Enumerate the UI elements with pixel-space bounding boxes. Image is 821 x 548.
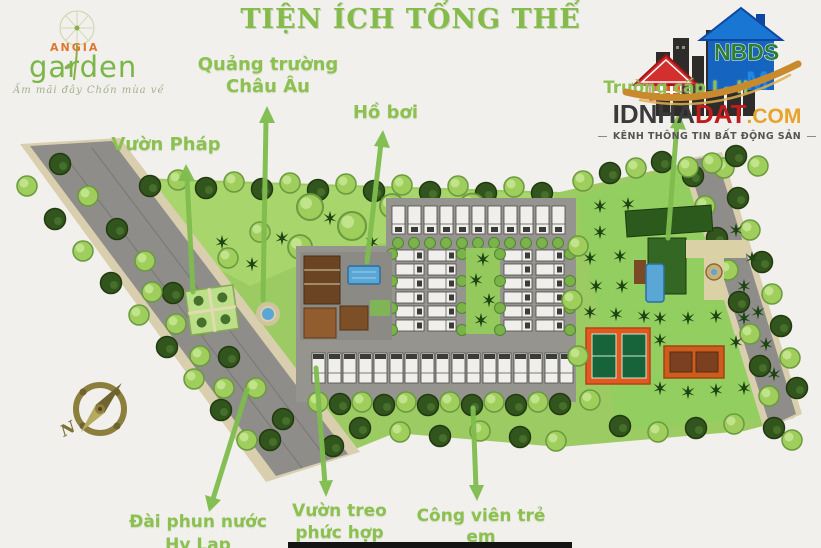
site-name-prefix: IDNHA xyxy=(613,99,695,129)
label-greek-fountain: Đài phun nước Hy Lạp xyxy=(123,511,273,548)
label-hanging-garden-line1: Vườn treo xyxy=(272,500,407,522)
label-greek-fountain-line1: Đài phun nước xyxy=(123,511,273,534)
nbds-site-name: IDNHADAT.COM xyxy=(598,99,816,130)
angia-tagline: Ấm mãi đây Chốn mùa về xyxy=(12,83,165,96)
label-european-square: Quảng trường Châu Âu xyxy=(193,54,343,98)
screenshot-root: N TIỆN ÍC xyxy=(0,0,821,548)
site-name-tld: .COM xyxy=(747,105,802,128)
house-row-top xyxy=(392,206,565,249)
label-greek-fountain-line2: Hy Lạp xyxy=(123,534,273,548)
label-european-square-line1: Quảng trường xyxy=(193,54,343,76)
label-hanging-garden-line2: phức hợp xyxy=(272,522,407,544)
swimming-pool xyxy=(348,266,380,284)
compass: N xyxy=(56,379,126,441)
nbds-acronym: NBDS xyxy=(714,39,779,65)
site-name-accent: DAT xyxy=(695,99,747,129)
palm-median xyxy=(466,248,500,334)
angia-brand-secondary: garden xyxy=(29,50,137,84)
label-french-garden: Vườn Pháp xyxy=(106,134,226,156)
nbds-tagline-text: KÊNH THÔNG TIN BẤT ĐỘNG SẢN xyxy=(613,131,801,142)
playground xyxy=(664,346,724,378)
tagline-dash-left xyxy=(598,136,607,137)
school-pool xyxy=(646,264,664,302)
angia-logo: ANGIA garden Ấm mãi đây Chốn mùa về xyxy=(5,0,175,100)
greek-fountain xyxy=(256,302,280,326)
clubhouse-complex xyxy=(300,252,392,340)
label-european-square-line2: Châu Âu xyxy=(193,76,343,98)
nbds-tagline: KÊNH THÔNG TIN BẤT ĐỘNG SẢN xyxy=(598,131,816,142)
label-swimming-pool: Hồ bơi xyxy=(343,102,428,124)
house-row-bottom xyxy=(312,353,573,383)
tagline-dash-right xyxy=(807,136,816,137)
tennis-courts xyxy=(586,328,650,384)
label-school: Trường cấp I - II xyxy=(596,78,756,98)
bottom-crop-bar xyxy=(288,542,572,548)
label-hanging-garden: Vườn treo phức hợp xyxy=(272,500,407,544)
